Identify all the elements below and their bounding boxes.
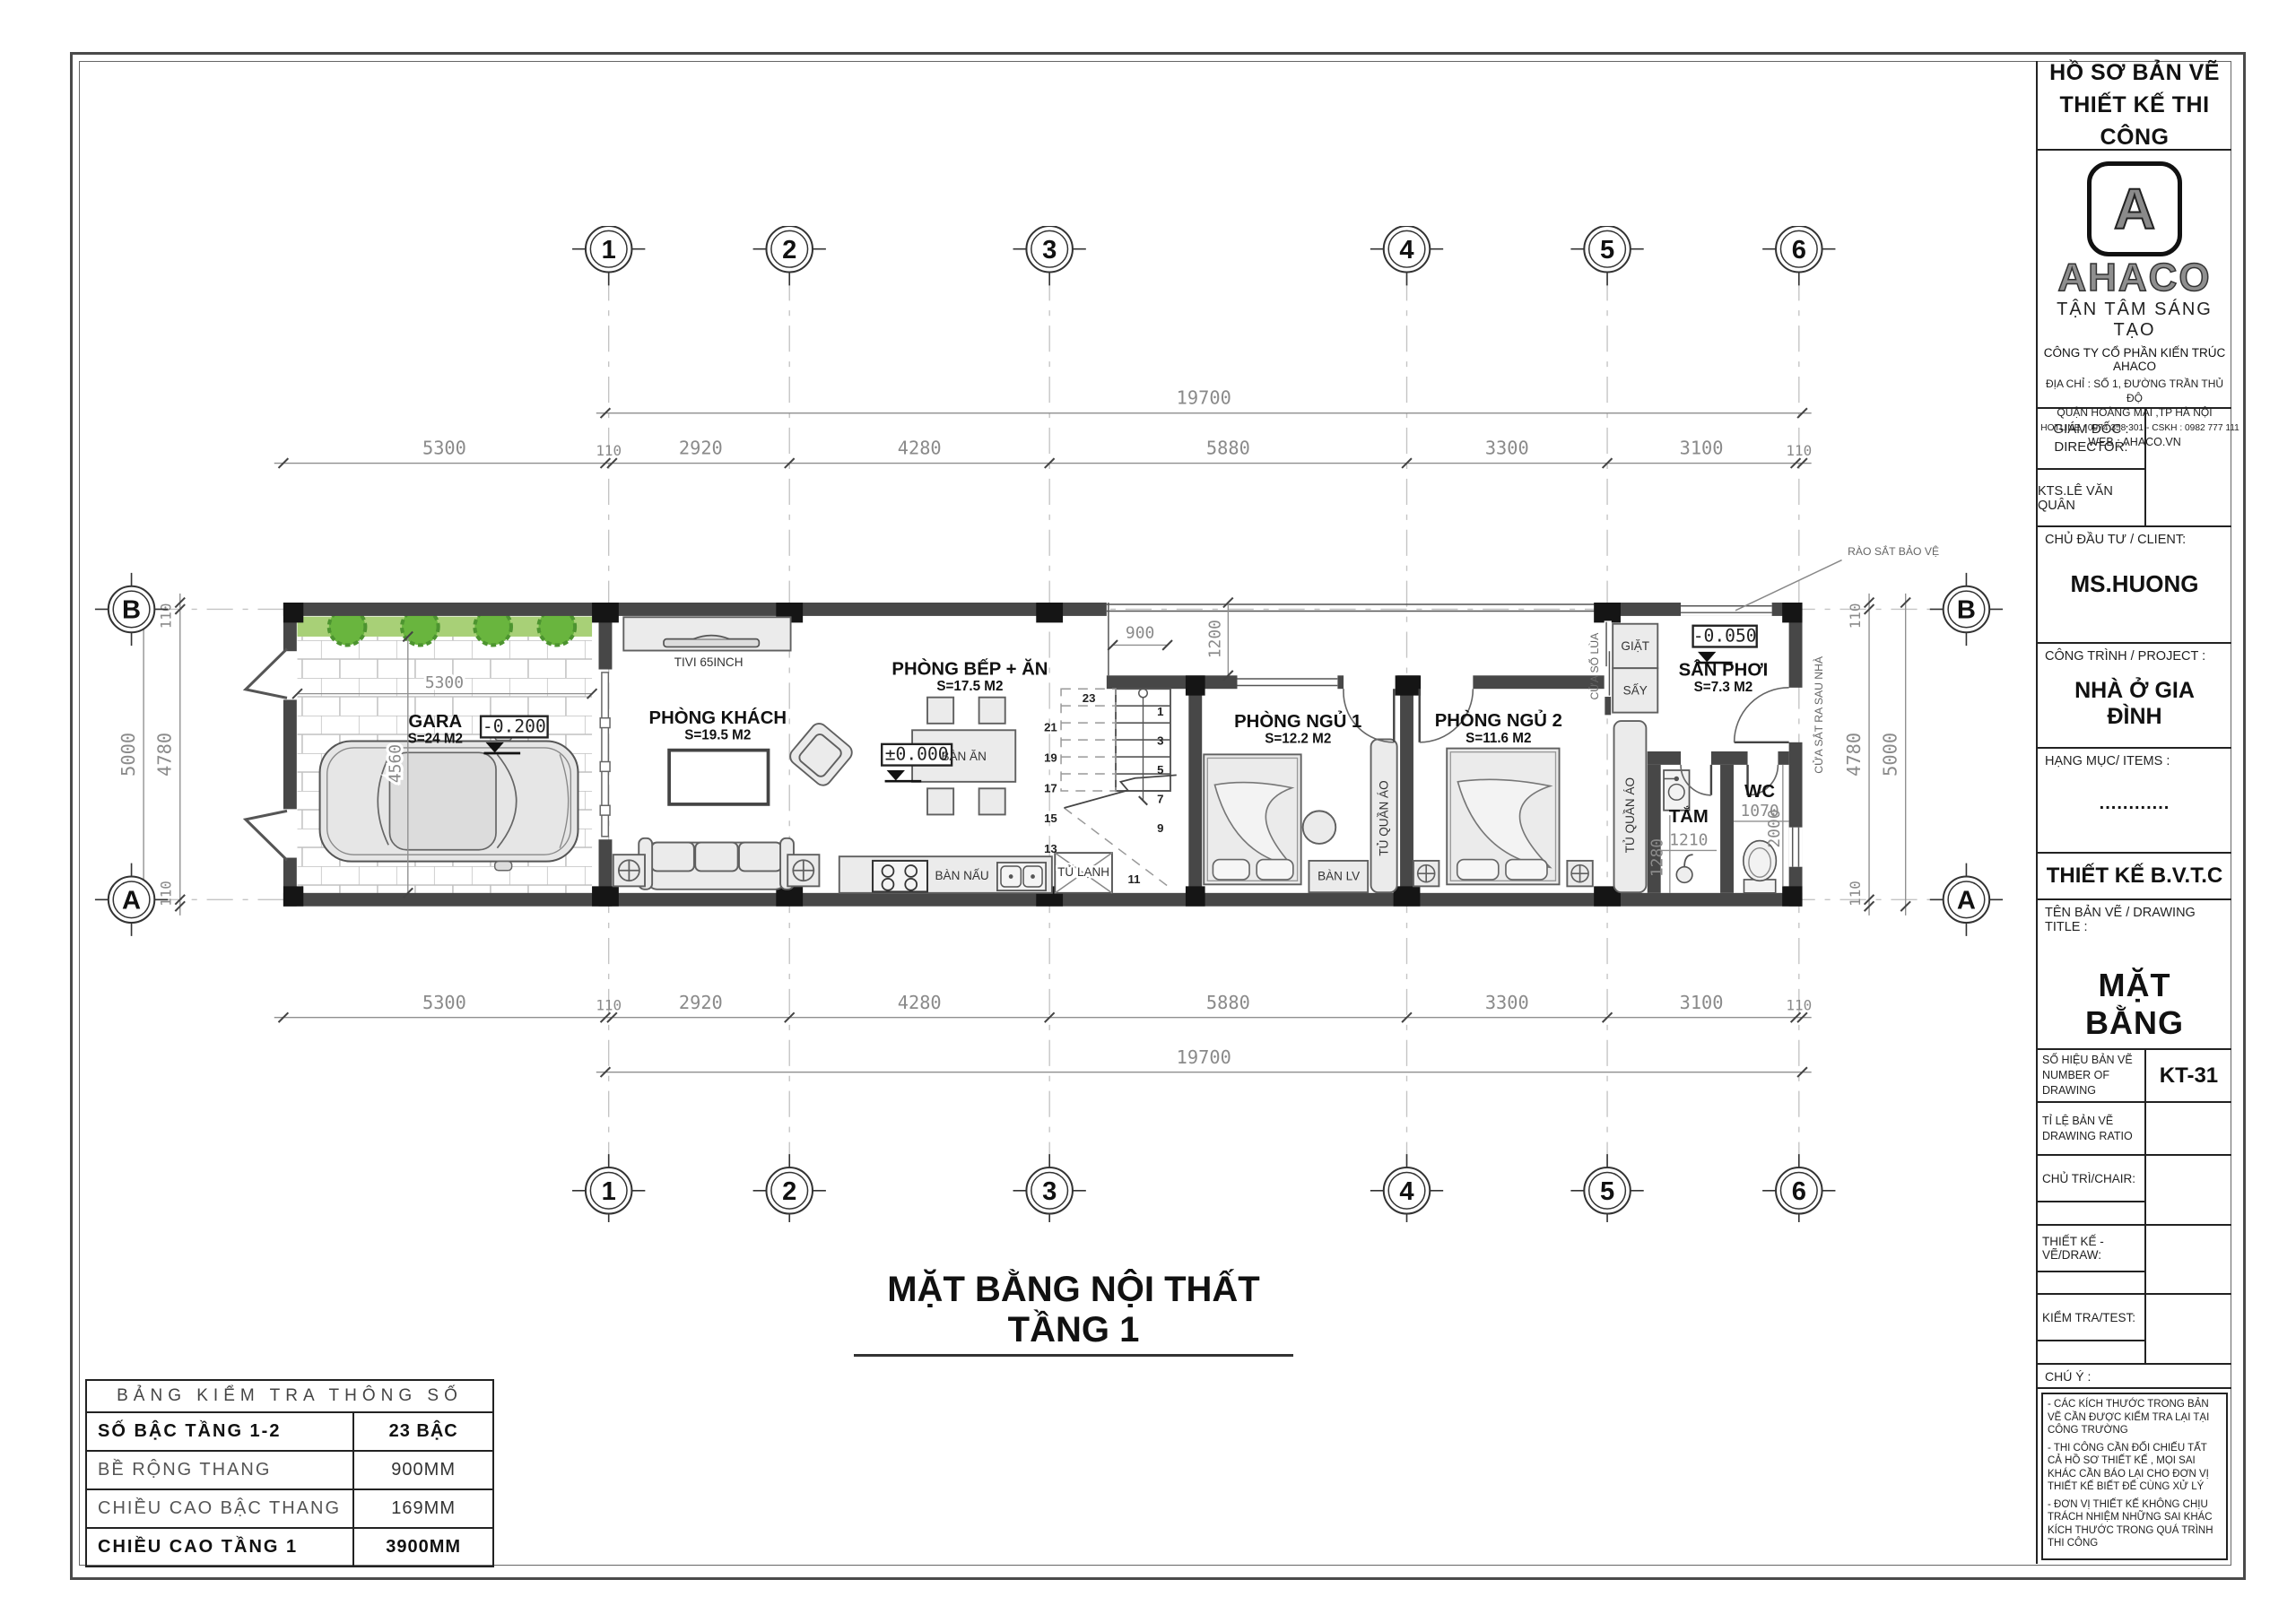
grid-bubble-row: A (95, 864, 168, 936)
side-table (787, 855, 819, 886)
svg-text:3300: 3300 (1485, 438, 1529, 459)
bed (1447, 749, 1559, 885)
svg-text:5880: 5880 (1206, 992, 1250, 1013)
svg-text:5: 5 (1600, 236, 1614, 265)
stair-number: 9 (1157, 821, 1163, 835)
grid-bubble-col: 6 (1762, 1154, 1835, 1222)
param-label: SỐ BẬC TẦNG 1-2 (87, 1413, 354, 1450)
svg-text:110: 110 (1847, 603, 1864, 629)
svg-text:2: 2 (782, 236, 796, 265)
number-label-vn: SỐ HIỆU BẢN VẼ (2042, 1053, 2144, 1068)
param-value: 169MM (354, 1490, 492, 1527)
title-block: HỒ SƠ BẢN VẼ THIẾT KẾ THI CÔNG A AHACO T… (2036, 61, 2231, 1564)
room-name: TẮM (1669, 805, 1709, 827)
dining-stool (979, 698, 1005, 724)
svg-text:5000: 5000 (117, 733, 139, 777)
room-area: S=17.5 M2 (936, 679, 1003, 694)
svg-text:5300: 5300 (422, 992, 466, 1013)
note-item: - ĐƠN VỊ THIẾT KẾ KHÔNG CHỊU TRÁCH NHIỆM… (2048, 1498, 2222, 1550)
drawing-number-row: SỐ HIỆU BẢN VẼ NUMBER OF DRAWING KT-31 (2038, 1050, 2231, 1103)
param-value: 900MM (354, 1452, 492, 1488)
wardrobe-label: TỦ QUẦN ÁO (1378, 780, 1391, 855)
param-label: CHIỀU CAO BẬC THANG (87, 1490, 354, 1527)
room-area: S=19.5 M2 (684, 727, 751, 742)
svg-text:3100: 3100 (1680, 992, 1724, 1013)
stair-number: 3 (1157, 734, 1163, 748)
svg-text:1: 1 (602, 236, 616, 265)
stair-number: 5 (1157, 763, 1163, 777)
drawing-title: MẶT BẰNG (2045, 967, 2224, 1042)
room-name: PHÒNG NGỦ 2 (1435, 709, 1562, 731)
stair-number: 1 (1157, 705, 1163, 718)
test-name-area (2038, 1341, 2144, 1363)
note-header: CHÚ Ý : (2038, 1365, 2231, 1390)
grid-bubble-row: B (1930, 573, 2003, 646)
drawing-number: KT-31 (2146, 1050, 2231, 1101)
items-label: HẠNG MỤC/ ITEMS : (2045, 754, 2224, 768)
pillow (1506, 860, 1547, 880)
stove (873, 861, 927, 892)
desk-label: BÀN LV (1318, 870, 1360, 883)
bed (1204, 754, 1300, 884)
svg-text:5: 5 (1600, 1177, 1614, 1206)
items-value: ............ (2045, 794, 2224, 814)
design-stage: THIẾT KẾ B.V.T.C (2038, 854, 2231, 900)
grid-bubble-col: 6 (1762, 226, 1835, 285)
chair-signature-area (2146, 1156, 2231, 1224)
washer-label: GIẶT (1621, 639, 1649, 653)
pillow (1257, 860, 1293, 880)
svg-text:3100: 3100 (1680, 438, 1724, 459)
svg-text:1210: 1210 (1669, 830, 1708, 849)
cook-counter-label: BÀN NẤU (935, 869, 989, 882)
drawing-title-label: TÊN BẢN VẼ / DRAWING TITLE : (2045, 906, 2224, 934)
floor-marker (1413, 861, 1439, 886)
svg-text:110: 110 (596, 997, 622, 1014)
test-row: KIỂM TRA/TEST: (2038, 1295, 2231, 1365)
svg-text:110: 110 (1786, 442, 1812, 459)
fence-label: RÀO SẮT BẢO VỆ (1848, 544, 1939, 558)
draw-row: THIẾT KẾ - VẼ/DRAW: (2038, 1226, 2231, 1296)
company-name: CÔNG TY CỔ PHẦN KIẾN TRÚC AHACO (2038, 346, 2231, 373)
logo-wordmark: AHACO (2038, 258, 2231, 298)
drawing-title-row: TÊN BẢN VẼ / DRAWING TITLE : MẶT BẰNG (2038, 900, 2231, 1050)
chair-name-area (2038, 1202, 2144, 1224)
header-line2: THIẾT KẾ THI CÔNG (2038, 89, 2231, 153)
table-row: BỀ RỘNG THANG 900MM (87, 1452, 492, 1490)
svg-text:2920: 2920 (679, 992, 723, 1013)
svg-text:2: 2 (782, 1177, 796, 1206)
svg-text:-0.200: -0.200 (483, 716, 546, 736)
pillow (1457, 860, 1499, 880)
svg-text:19700: 19700 (1177, 1046, 1231, 1068)
svg-text:5880: 5880 (1206, 438, 1250, 459)
svg-text:±0.000: ±0.000 (885, 743, 949, 764)
svg-text:4: 4 (1399, 236, 1414, 265)
sliding-window-label: CỬA SỔ LÙA (1587, 632, 1601, 700)
stair-number: 15 (1044, 811, 1057, 825)
wc-window (1789, 828, 1803, 867)
project-name: NHÀ Ở GIA ĐÌNH (2045, 678, 2224, 730)
svg-text:110: 110 (158, 881, 175, 907)
draw-label: THIẾT KẾ - VẼ/DRAW: (2038, 1226, 2144, 1272)
stair-number: 13 (1044, 842, 1057, 855)
director-label: GIÁM ĐỐC : DIRECTOR: (2038, 409, 2144, 470)
room-name: PHÒNG BẾP + ĂN (891, 658, 1048, 680)
dining-table-label: BÀN ĂN (941, 750, 986, 763)
bedroom1-window (1238, 675, 1338, 689)
sliding-window (1605, 621, 1612, 697)
client-label: CHỦ ĐẦU TƯ / CLIENT: (2045, 533, 2224, 547)
drawing-caption: MẶT BẰNG NỘI THẤT TẦNG 1 (854, 1270, 1293, 1357)
room-area: S=11.6 M2 (1465, 731, 1531, 746)
svg-text:3: 3 (1042, 236, 1057, 265)
svg-text:5300: 5300 (425, 673, 464, 692)
toilet (1744, 841, 1777, 893)
stair-number: 19 (1044, 751, 1057, 765)
stair-number: 23 (1083, 691, 1096, 705)
floor-plan: 1 3 5 7 9 11 13 15 17 19 21 23 (65, 226, 2033, 1222)
tv (664, 639, 759, 647)
grid-bubble-row: B (95, 573, 168, 646)
svg-text:4280: 4280 (898, 992, 942, 1013)
parameter-table: BẢNG KIỂM TRA THÔNG SỐ SỐ BẬC TẦNG 1-2 2… (85, 1379, 494, 1567)
table-row: CHIỀU CAO TẦNG 1 3900MM (87, 1529, 492, 1566)
param-value: 3900MM (354, 1529, 492, 1566)
client-name: MS.HUONG (2045, 570, 2224, 598)
wardrobe-label: TỦ QUẦN ÁO (1623, 777, 1637, 853)
svg-text:-0.050: -0.050 (1693, 625, 1757, 646)
svg-text:4280: 4280 (898, 438, 942, 459)
dining-stool (927, 698, 953, 724)
svg-text:4780: 4780 (154, 733, 176, 777)
svg-text:5000: 5000 (1880, 733, 1901, 777)
pillow (1213, 860, 1249, 880)
stair-number: 7 (1157, 793, 1163, 806)
grid-bubble-col: 1 (572, 226, 645, 285)
grid-bubble-row: A (1930, 864, 2003, 936)
svg-text:4: 4 (1399, 1177, 1414, 1206)
stair-number: 21 (1044, 721, 1057, 734)
notes-box: - CÁC KÍCH THƯỚC TRONG BẢN VẼ CẦN ĐƯỢC K… (2041, 1393, 2228, 1560)
svg-text:19700: 19700 (1177, 386, 1231, 408)
ratio-row: TỈ LỆ BẢN VẼ DRAWING RATIO (2038, 1103, 2231, 1156)
garage-sliding-door (600, 673, 610, 837)
address-line1: ĐỊA CHỈ : SỐ 1, ĐƯỜNG TRẦN THỦ ĐỘ (2038, 377, 2231, 405)
table-row: SỐ BẬC TẦNG 1-2 23 BẬC (87, 1413, 492, 1452)
svg-text:1200: 1200 (1206, 620, 1225, 658)
dining-stool (979, 788, 1005, 814)
director-row: GIÁM ĐỐC : DIRECTOR: KTS.LÊ VĂN QUÂN (2038, 409, 2231, 527)
svg-text:4560: 4560 (387, 744, 405, 783)
test-label: KIỂM TRA/TEST: (2038, 1295, 2144, 1341)
director-signature-area (2146, 409, 2231, 525)
svg-text:110: 110 (1847, 881, 1864, 907)
dining-stool (927, 788, 953, 814)
room-name: WC (1744, 782, 1775, 802)
number-label-en: NUMBER OF DRAWING (2042, 1068, 2144, 1098)
back-door-label: CỬA SẮT RA SAU NHÀ (1812, 655, 1825, 774)
ratio-value-area (2146, 1103, 2231, 1154)
architect-name: KTS.LÊ VĂN QUÂN (2038, 470, 2144, 527)
svg-text:1: 1 (602, 1177, 616, 1206)
company-logo-block: A AHACO TẬN TÂM SÁNG TẠO CÔNG TY CỔ PHẦN… (2038, 151, 2231, 409)
grid-bubble-col: 4 (1370, 1154, 1443, 1222)
stair-number: 11 (1128, 872, 1141, 886)
room-name: GARA (408, 712, 462, 732)
room-area: S=12.2 M2 (1265, 732, 1331, 747)
chair-label: CHỦ TRÌ/CHAIR: (2038, 1156, 2144, 1202)
car (320, 732, 578, 871)
stool (1303, 811, 1336, 844)
room-area: S=24 M2 (408, 732, 463, 747)
svg-text:B: B (122, 596, 141, 625)
svg-text:1280: 1280 (1648, 838, 1667, 877)
drawing-sheet: 1 3 5 7 9 11 13 15 17 19 21 23 (0, 0, 2296, 1623)
washbasin (1664, 770, 1689, 811)
laundry-yard-window (1681, 603, 1772, 616)
ratio-label-vn: TỈ LỆ BẢN VẼ (2042, 1114, 2144, 1129)
svg-text:900: 900 (1126, 623, 1154, 642)
fridge-label: TỦ LẠNH (1057, 865, 1109, 879)
director-label-en: DIRECTOR: (2038, 438, 2144, 456)
param-label: BỀ RỘNG THANG (87, 1452, 354, 1488)
company-tagline: TẬN TÂM SÁNG TẠO (2038, 299, 2231, 341)
grid-bubble-col: 4 (1370, 226, 1443, 285)
items-row: HẠNG MỤC/ ITEMS : ............ (2038, 749, 2231, 854)
test-signature-area (2146, 1295, 2231, 1363)
svg-text:110: 110 (158, 603, 175, 629)
svg-text:6: 6 (1792, 1177, 1806, 1206)
tv-label: TIVI 65INCH (674, 655, 744, 669)
table-row: CHIỀU CAO BẬC THANG 169MM (87, 1490, 492, 1529)
svg-text:5300: 5300 (422, 438, 466, 459)
svg-text:4780: 4780 (1843, 733, 1865, 777)
dryer-label: SẤY (1623, 683, 1648, 697)
project-label: CÔNG TRÌNH / PROJECT : (2045, 649, 2224, 664)
svg-text:A: A (122, 886, 141, 915)
ratio-label-en: DRAWING RATIO (2042, 1129, 2144, 1144)
grid-bubble-col: 2 (753, 1154, 826, 1222)
svg-text:3300: 3300 (1485, 992, 1529, 1013)
parameter-table-title: BẢNG KIỂM TRA THÔNG SỐ (87, 1381, 492, 1413)
grid-bubble-col: 5 (1570, 226, 1643, 285)
grid-bubble-col: 1 (572, 1154, 645, 1222)
note-item: - THI CÔNG CẦN ĐỐI CHIẾU TẤT CẢ HỒ SƠ TH… (2048, 1442, 2222, 1494)
svg-text:3: 3 (1042, 1177, 1057, 1206)
room-area: S=7.3 M2 (1694, 680, 1753, 695)
room-name: SÂN PHƠI (1679, 658, 1769, 680)
svg-text:110: 110 (596, 442, 622, 459)
grid-bubble-col: 3 (1013, 226, 1086, 285)
garage-gate (246, 648, 287, 860)
client-row: CHỦ ĐẦU TƯ / CLIENT: MS.HUONG (2038, 527, 2231, 644)
logo-letter: A (2114, 176, 2155, 242)
title-block-header: HỒ SƠ BẢN VẼ THIẾT KẾ THI CÔNG (2038, 61, 2231, 151)
grid-bubble-col: 2 (753, 226, 826, 285)
header-line1: HỒ SƠ BẢN VẼ (2038, 56, 2231, 89)
chair-row: CHỦ TRÌ/CHAIR: (2038, 1156, 2231, 1226)
side-table (613, 855, 645, 886)
room-name: PHÒNG KHÁCH (649, 707, 787, 728)
kitchen-sink (997, 863, 1046, 890)
company-logo-icon: A (2087, 161, 2182, 256)
svg-text:2000: 2000 (1765, 809, 1784, 847)
svg-text:6: 6 (1792, 236, 1806, 265)
svg-text:B: B (1957, 596, 1976, 625)
project-row: CÔNG TRÌNH / PROJECT : NHÀ Ở GIA ĐÌNH (2038, 644, 2231, 749)
param-label: CHIỀU CAO TẦNG 1 (87, 1529, 354, 1566)
car-mirror (495, 862, 512, 871)
svg-text:110: 110 (1786, 997, 1812, 1014)
svg-text:A: A (1957, 886, 1976, 915)
note-item: - CÁC KÍCH THƯỚC TRONG BẢN VẼ CẦN ĐƯỢC K… (2048, 1398, 2222, 1437)
grid-bubble-col: 5 (1570, 1154, 1643, 1222)
director-label-vn: GIÁM ĐỐC : (2038, 421, 2144, 438)
draw-name-area (2038, 1272, 2144, 1294)
grid-bubble-col: 3 (1013, 1154, 1086, 1222)
draw-signature-area (2146, 1226, 2231, 1294)
stair-number: 17 (1044, 781, 1057, 794)
param-value: 23 BẬC (354, 1413, 492, 1450)
floor-marker (1567, 861, 1592, 886)
svg-text:2920: 2920 (679, 438, 723, 459)
room-name: PHÒNG NGỦ 1 (1234, 710, 1361, 732)
